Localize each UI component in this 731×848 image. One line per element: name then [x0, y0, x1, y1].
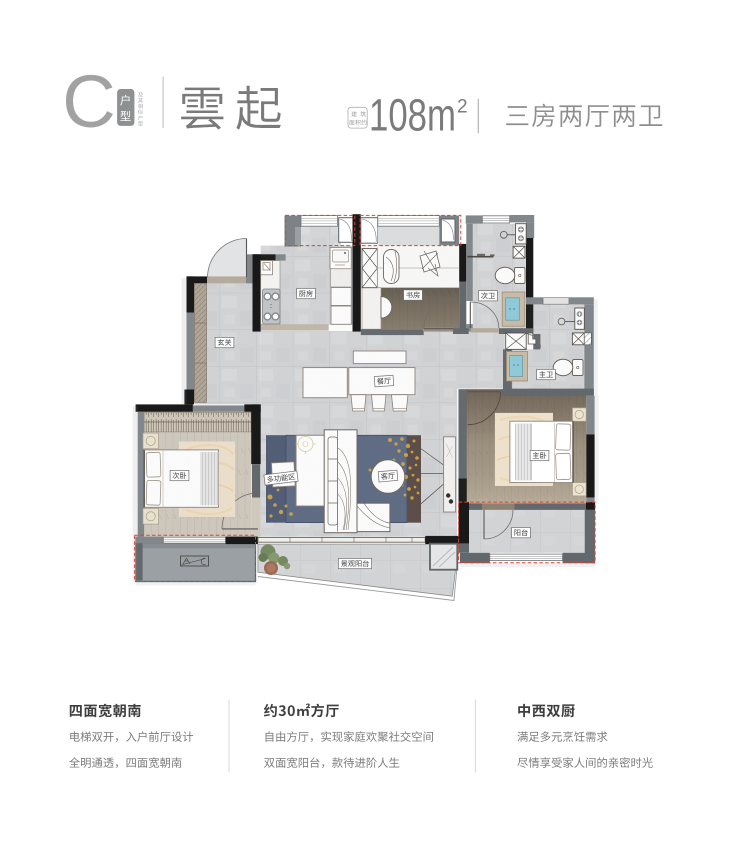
svg-text:108m: 108m: [369, 90, 456, 141]
svg-text:2: 2: [457, 97, 468, 118]
svg-text:C: C: [62, 60, 115, 143]
